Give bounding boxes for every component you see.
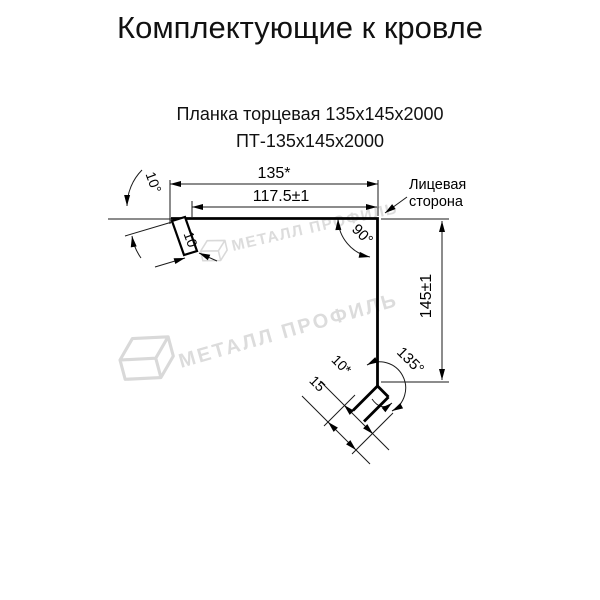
flange-extension-line	[125, 222, 172, 236]
face-note-line2: сторона	[409, 194, 464, 210]
angle-arc-upper	[127, 170, 142, 206]
label-bottom-kick: 15	[306, 372, 328, 394]
label-total-width: 135*	[258, 165, 291, 182]
label-face-width: 117.5±1	[253, 188, 310, 205]
brand-logo-icon	[115, 330, 177, 387]
watermark-text: МЕТАЛЛ ПРОФИЛЬ	[176, 289, 400, 373]
face-note-line1: Лицевая	[409, 177, 466, 193]
profile-bottom-kick	[353, 386, 378, 411]
page: Комплектующие к кровле Планка торцевая 1…	[0, 0, 600, 600]
label-bottom-hem: 10*	[328, 351, 355, 378]
dim-line-15	[328, 422, 356, 450]
label-top-left-angle: 10°	[143, 170, 165, 195]
dim-line-10star	[344, 405, 373, 434]
label-bottom-angle: 135°	[393, 344, 427, 378]
brand-logo-icon	[199, 237, 229, 265]
angle-arc-lower	[132, 236, 141, 258]
angle-arc-135	[367, 362, 406, 411]
profile-bottom-fold-cap	[378, 386, 389, 397]
profile-bottom-hem	[364, 397, 389, 422]
watermark-lower: МЕТАЛЛ ПРОФИЛЬ	[115, 289, 400, 387]
ext-line-hem-1	[324, 395, 355, 426]
watermark-text: МЕТАЛЛ ПРОФИЛЬ	[230, 200, 399, 255]
flange-dim-arrow-left	[155, 258, 185, 267]
technical-drawing: МЕТАЛЛ ПРОФИЛЬ МЕТАЛЛ ПРОФИЛЬ	[0, 0, 600, 600]
label-height: 145±1	[418, 274, 435, 318]
